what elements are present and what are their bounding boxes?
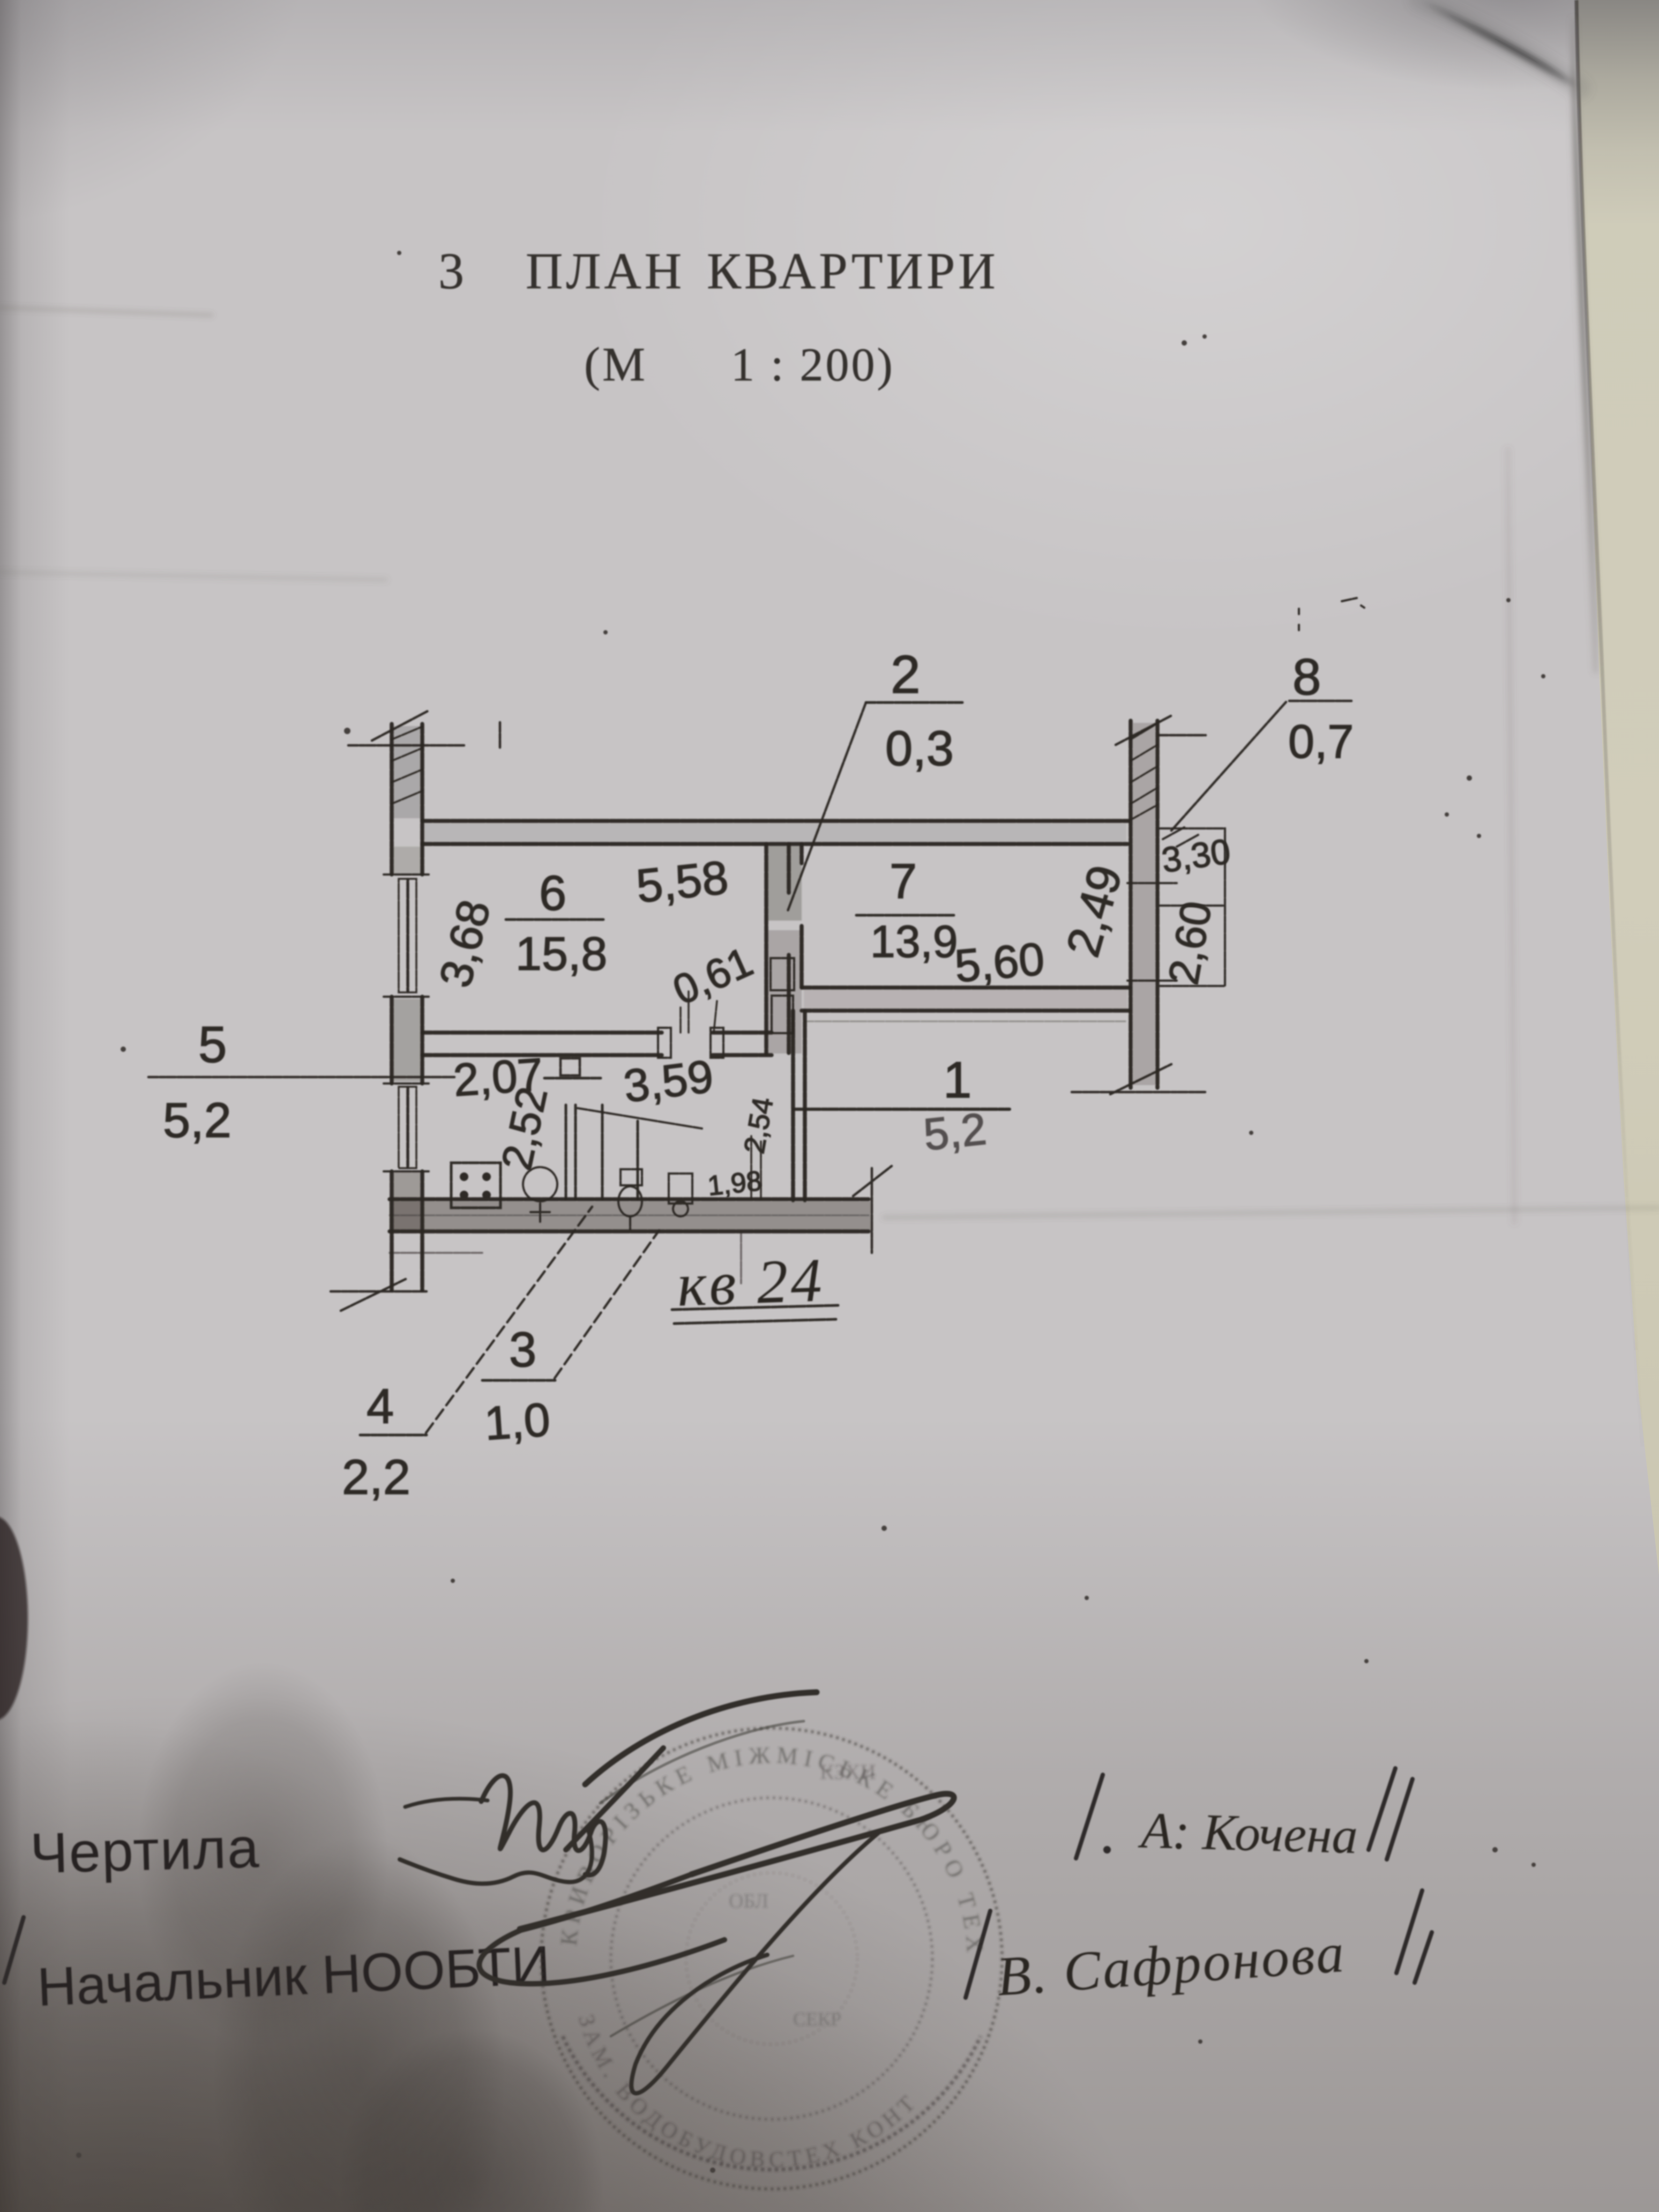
svg-text:ПЛАН: ПЛАН [526,242,685,300]
svg-text:8: 8 [1292,648,1321,706]
svg-text:15,8: 15,8 [515,927,607,980]
svg-text:5,2: 5,2 [921,1103,989,1160]
svg-text:13,9: 13,9 [870,916,958,967]
svg-text:Чертила: Чертила [29,1816,261,1885]
svg-text:7: 7 [890,854,917,909]
svg-text:5,2: 5,2 [163,1093,231,1148]
svg-text:2,2: 2,2 [342,1450,410,1505]
svg-text:А: Кочена: А: Кочена [1137,1801,1358,1864]
svg-text:3: 3 [509,1322,536,1377]
svg-text:4: 4 [367,1379,394,1434]
svg-text:1,98: 1,98 [706,1165,764,1202]
svg-text:6: 6 [539,866,566,921]
svg-text:1: 1 [943,1051,972,1109]
svg-text:2,54: 2,54 [738,1095,779,1156]
svg-text:3,30: 3,30 [1159,831,1233,880]
svg-text:СЕКР: СЕКР [793,2008,841,2030]
svg-text:Начальник НООБТИ: Начальник НООБТИ [36,1935,551,2017]
svg-text:ОБЛ: ОБЛ [729,1890,768,1912]
svg-text:КВАРТИРИ: КВАРТИРИ [707,242,999,300]
svg-text:(М: (М [584,338,647,391]
svg-text:0,61: 0,61 [666,938,759,1014]
svg-text:3,59: 3,59 [621,1050,716,1112]
svg-text:0,3: 0,3 [885,721,954,776]
svg-text:5,58: 5,58 [634,850,731,913]
svg-text:2,49: 2,49 [1056,860,1132,962]
svg-text:5,60: 5,60 [953,933,1047,992]
svg-text:0,7: 0,7 [1288,715,1354,768]
svg-text:5: 5 [198,1016,227,1073]
svg-text:КЗХИ: КЗХИ [820,1760,876,1784]
svg-text:3: 3 [438,242,467,300]
svg-text:1,0: 1,0 [483,1393,552,1450]
svg-text:2: 2 [891,645,921,705]
svg-text:3,68: 3,68 [430,895,500,992]
svg-text:кв 24: кв 24 [676,1246,826,1320]
svg-text:2,60: 2,60 [1159,898,1221,988]
svg-text:1 : 200): 1 : 200) [731,339,895,391]
svg-text:В. Сафронова: В. Сафронова [995,1922,1348,2007]
